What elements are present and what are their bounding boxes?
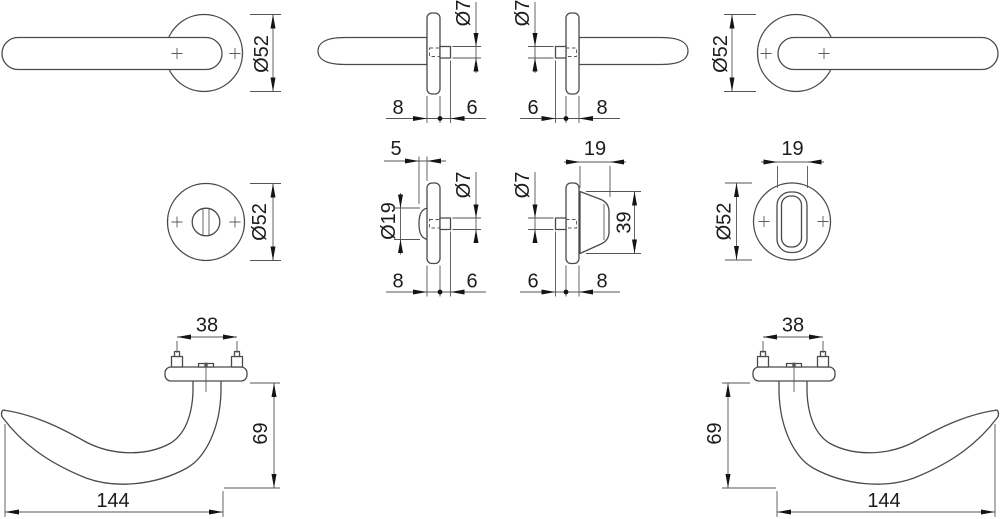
arrowhead [579,116,593,121]
spindle-edge [199,364,206,368]
arrowhead [809,335,823,340]
dim-rosette-diameter: Ø52 [714,183,753,260]
extension-line [528,218,554,230]
arrowhead [764,160,778,165]
arrowhead [726,383,731,397]
dim-label-length: 144 [867,490,900,512]
arrowhead [632,192,637,206]
spindle-stub [556,218,567,230]
dim-label-projection: 69 [704,422,726,444]
spindle-stub [440,218,451,230]
dim-projection: 69 [704,383,776,488]
arrowhead [398,240,403,254]
chain-dot [438,116,443,121]
dim-spindle-diameter: Ø7 [453,0,482,73]
extension-line [722,383,776,488]
dim-label-rosette-thickness: 8 [392,97,403,119]
dim-label-spindle-diameter: Ø7 [512,172,534,199]
arrowhead [533,33,538,47]
fixing-mark-cross [818,216,829,227]
arrowhead [542,116,556,121]
arrowhead [763,335,777,340]
dim-label-rosette-diameter: Ø52 [714,203,736,241]
spindle-stub [440,47,451,59]
figure-wc-rosette-front: Ø52 [168,184,282,261]
arrowhead [413,290,427,295]
handle-tip-cap [2,410,4,418]
rosette-side [566,13,579,94]
screw-post [758,357,769,368]
dim-label-knob-height: 39 [614,211,636,233]
extension-line [453,218,482,230]
dim-screw-spacing: 38 [763,315,823,354]
arrowhead [405,159,419,164]
arrowhead [542,290,556,295]
dim-length: 144 [777,424,995,517]
figure-lever-side-right: Ø7 6 8 [512,0,688,123]
neck-line [193,381,221,392]
rosette-side [427,183,440,264]
dim-screw-spacing: 38 [177,315,237,354]
dim-label-knob-width: 19 [781,138,803,160]
arrowhead [533,58,538,72]
dim-label-knob-projection: 19 [584,138,606,160]
extension-line [580,166,610,197]
dim-spindle-diameter: Ø7 [453,172,482,243]
arrowhead [271,247,276,261]
figure-lever-plan-left: 38 69 144 [2,315,281,518]
handle-grip [2,38,222,70]
fixing-mark-cross [172,217,183,228]
dim-rosette-diameter: Ø52 [250,15,281,92]
extension-line [763,341,823,353]
arrowhead [533,205,538,219]
chain-dot [564,290,569,295]
dim-label-rosette-thickness: 8 [596,271,607,293]
dim-label-release-diameter: Ø19 [378,202,400,240]
dim-spindle-diameter: Ø7 [512,172,554,243]
arrowhead [726,474,731,488]
thumbturn-knob [580,192,609,254]
extension-line [177,341,237,353]
dim-projection: 69 [224,383,280,488]
screw-post [232,357,243,368]
release-slot [203,209,209,235]
dim-label-spindle-diameter: Ø7 [512,0,534,26]
handle-grip-side [579,38,688,65]
arrowhead [451,116,465,121]
extension-line [453,47,482,59]
handle-outer-curve [3,392,221,484]
handle-outer-curve [779,392,997,484]
dim-label-projection: 69 [250,422,272,444]
arrowhead [566,160,580,165]
rosette-side [566,183,579,264]
fixing-mark-cross [230,217,241,228]
arrowhead [474,58,479,72]
figure-thumbturn-side: 19 39 Ø7 6 8 [512,138,641,297]
arrowhead [981,510,995,515]
fixing-mark-cross [759,216,770,227]
dim-label-spindle-projection: 6 [466,97,477,119]
arrowhead [413,116,427,121]
arrowhead [533,230,538,244]
arrowhead [474,205,479,219]
fixing-mark-cross [761,48,772,59]
dim-label-length: 144 [96,490,129,512]
dim-label-rosette-thickness: 8 [596,97,607,119]
thumbturn-grip-outline [782,196,802,247]
arrowhead [734,246,739,260]
arrowhead [177,335,191,340]
arrowhead [272,383,277,397]
figure-lever-side-left: Ø7 8 6 [318,0,486,123]
release-outline [192,208,220,236]
dim-label-spindle-projection: 6 [527,97,538,119]
extension-line [528,47,554,59]
chain-dot [564,116,569,121]
arrowhead [474,230,479,244]
fixing-mark-cross [230,48,241,59]
rosette-side [427,13,440,94]
arrowhead [271,15,276,29]
dim-label-rosette-diameter: Ø52 [249,203,271,241]
technical-drawing-page: Ø52 Ø7 8 6 [0,0,1000,519]
dim-knob-width: 19 [761,138,824,188]
dim-spindle-diameter: Ø7 [512,0,554,73]
dim-release-diameter: Ø19 [378,193,420,255]
release-dome [419,208,428,240]
arrowhead [271,78,276,92]
screw-post [818,357,829,368]
arrowhead [579,290,593,295]
arrowhead [610,160,624,165]
neck-line [779,381,807,392]
handle-inner-curve [807,392,997,453]
arrowhead [474,33,479,47]
figure-lever-front-left: Ø52 [2,15,281,92]
spindle-stub [556,47,567,59]
dim-rosette-diameter: Ø52 [249,184,281,261]
figure-wc-release-side: 5 Ø19 Ø7 8 6 [378,138,486,297]
handle-inner-curve [3,392,193,453]
dim-length: 144 [5,424,223,517]
arrowhead [777,510,791,515]
technical-drawing: Ø52 Ø7 8 6 [0,0,1000,519]
extension-line [419,157,427,205]
dim-label-screw-spacing: 38 [782,315,804,337]
dim-label-spindle-diameter: Ø7 [453,0,475,26]
spindle-edge [795,364,802,368]
spindle-edge [207,364,214,368]
dim-label-rosette-diameter: Ø52 [251,35,273,73]
arrowhead [632,240,637,254]
handle-grip-side [318,38,427,65]
dim-rosette-diameter: Ø52 [710,15,756,92]
handle-grip [778,38,998,70]
figure-thumbturn-front: 19 Ø52 [714,138,831,260]
arrowhead [730,78,735,92]
arrowhead [5,510,19,515]
figure-lever-plan-right: 38 69 144 [704,315,999,518]
dim-label-rosette-thickness: 8 [392,271,403,293]
arrowhead [734,183,739,197]
arrowhead [272,474,277,488]
dim-label-spindle-diameter: Ø7 [453,172,475,199]
arrowhead [730,15,735,29]
screw-post [172,357,183,368]
dim-label-screw-spacing: 38 [196,315,218,337]
arrowhead [808,160,822,165]
arrowhead [451,290,465,295]
spindle-edge [787,364,794,368]
dim-label-spindle-projection: 6 [466,271,477,293]
dim-label-release-projection: 5 [390,138,401,160]
arrowhead [223,335,237,340]
dim-label-rosette-diameter: Ø52 [710,35,732,73]
arrowhead [271,184,276,198]
arrowhead [427,159,441,164]
chain-dot [438,290,443,295]
arrowhead [209,510,223,515]
figure-lever-front-right: Ø52 [710,15,998,92]
handle-tip-cap [997,410,999,418]
dim-label-spindle-projection: 6 [527,271,538,293]
